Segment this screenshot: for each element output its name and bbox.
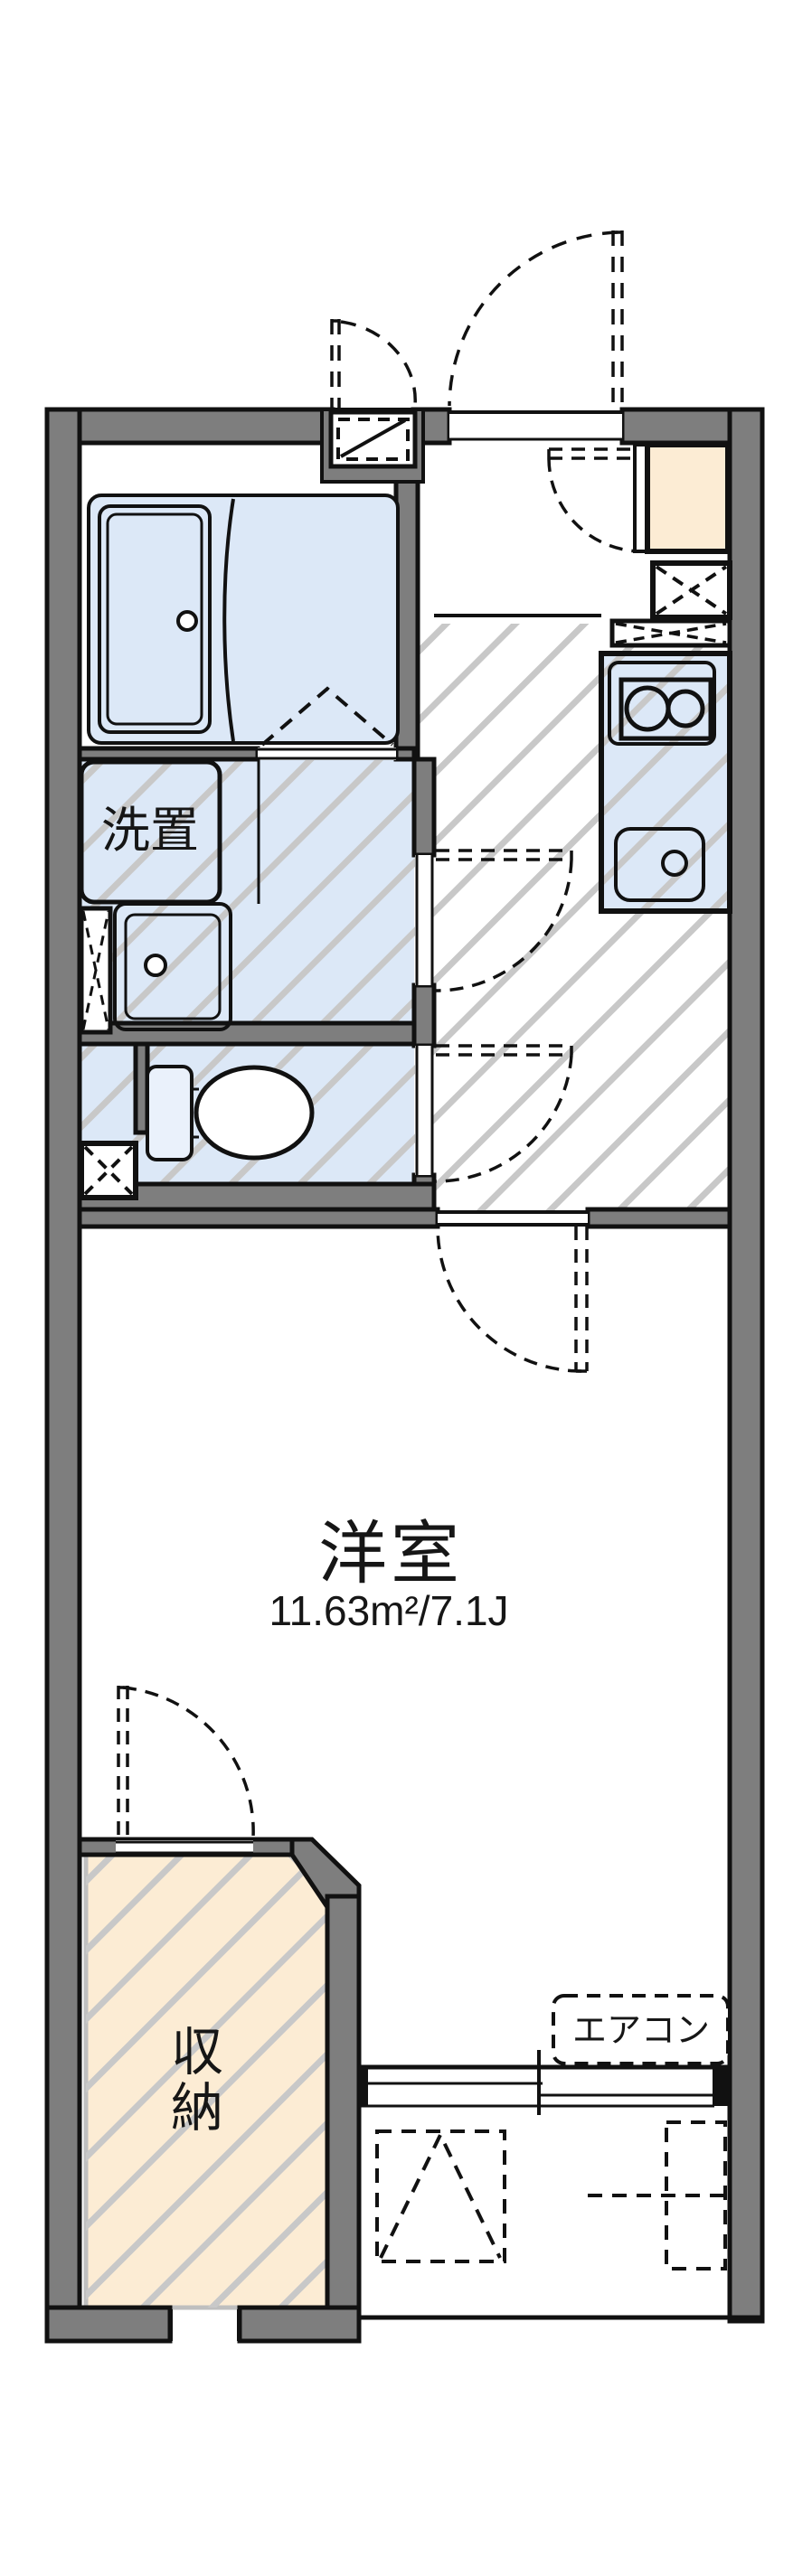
closet-bottom-vent bbox=[170, 2310, 240, 2339]
wall-bath-bottom-right bbox=[396, 748, 414, 759]
bathroom bbox=[89, 495, 398, 745]
wall-room-top-left bbox=[80, 1209, 438, 1227]
bath-unit bbox=[89, 495, 398, 743]
wall-hall-washroom-2 bbox=[414, 985, 434, 1046]
floorplan-page: 収 納 bbox=[0, 0, 812, 2576]
closet-label-char2: 納 bbox=[171, 2079, 223, 2138]
wall-closet-right bbox=[327, 1896, 359, 2321]
vanity-drain-icon bbox=[146, 955, 165, 975]
bathtub-drain-icon bbox=[178, 612, 196, 630]
toilet-shaft bbox=[81, 1143, 136, 1198]
toilet-tank bbox=[147, 1067, 192, 1160]
window-end-block bbox=[713, 2067, 730, 2106]
wall-closet-bottom-right bbox=[240, 2308, 359, 2341]
washer-label: 洗置 bbox=[101, 804, 199, 858]
entrance-opening bbox=[449, 412, 622, 440]
washroom-shaft bbox=[81, 908, 110, 1032]
aircon-label: エアコン bbox=[572, 2012, 710, 2050]
bath-window bbox=[322, 409, 423, 482]
main-room-label: 洋室 bbox=[318, 1516, 463, 1593]
closet: 収 納 bbox=[86, 1855, 329, 2308]
wall-washroom-toilet bbox=[80, 1023, 414, 1044]
main-room-area: 11.63m²/7.1J bbox=[269, 1587, 508, 1634]
window-start-block bbox=[359, 2067, 368, 2106]
wall-closet-bottom-left bbox=[47, 2308, 170, 2341]
closet-label-char1: 収 bbox=[171, 2023, 223, 2082]
hatch-hallway bbox=[414, 624, 730, 1212]
wall-hall-washroom-1 bbox=[414, 759, 434, 855]
wall-room-top-right bbox=[588, 1209, 730, 1227]
wall-top-left bbox=[47, 409, 333, 443]
toilet-bowl bbox=[196, 1067, 312, 1158]
pipe-shaft bbox=[653, 563, 730, 617]
wall-bath-bottom bbox=[80, 748, 258, 759]
shoe-cabinet bbox=[647, 445, 728, 551]
floorplan-canvas: 収 納 bbox=[0, 0, 812, 2576]
wall-right bbox=[730, 409, 762, 2321]
wall-left bbox=[47, 409, 80, 2341]
fridge-slot bbox=[612, 621, 730, 645]
